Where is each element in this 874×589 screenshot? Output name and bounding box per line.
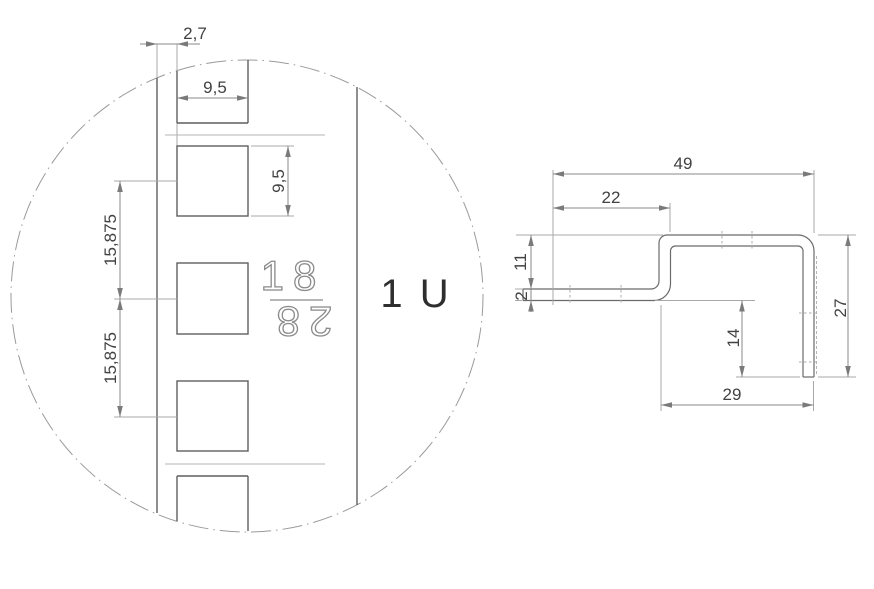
- arrowhead: [285, 146, 291, 157]
- dim-step-height-text: 11: [511, 253, 530, 271]
- rack-rail-detail-view: 2,7 9,5 9,5 15,875: [11, 24, 483, 532]
- bracket-profile-outline: [523, 231, 818, 377]
- arrowhead: [528, 278, 534, 289]
- arrowhead: [661, 402, 672, 408]
- hole-square: [177, 381, 248, 451]
- dimension-lower-width: 29: [661, 305, 814, 411]
- arrowhead: [177, 95, 188, 101]
- hole-square-bottom-partial: [177, 476, 248, 531]
- unit-number-marking: 18 28: [261, 252, 333, 345]
- dimension-overall-width: 49: [553, 154, 814, 305]
- dimension-step-height: 11: [511, 235, 663, 289]
- rail-outline: [157, 44, 357, 513]
- dim-hole-height-text: 9,5: [269, 169, 288, 193]
- bracket-profile-view: 49 22 11 2: [511, 154, 856, 411]
- arrowhead: [528, 235, 534, 246]
- dim-edge-offset-text: 2,7: [183, 24, 207, 43]
- arrowhead: [117, 288, 123, 299]
- marking-bottom-text: 28: [268, 298, 333, 345]
- profile-lower-surface: [523, 246, 803, 377]
- arrowhead: [803, 171, 814, 177]
- dimension-hole-width: 9,5: [177, 78, 248, 101]
- dimension-leg-height: 14: [655, 301, 800, 378]
- arrowhead: [528, 301, 534, 312]
- arrowhead: [237, 95, 248, 101]
- dim-pitch-lower-text: 15,875: [101, 332, 120, 384]
- dimension-upper-flange: 22: [553, 188, 670, 232]
- dim-pitch-upper-text: 15,875: [101, 214, 120, 266]
- marking-top-text: 18: [261, 252, 326, 299]
- arrowhead: [739, 366, 745, 377]
- arrowhead: [117, 406, 123, 417]
- arrowhead: [553, 171, 564, 177]
- arrowhead: [845, 366, 851, 377]
- drawing-svg: 2,7 9,5 9,5 15,875: [0, 0, 874, 584]
- mounting-holes: [177, 60, 248, 531]
- unit-height-label: 1 U: [380, 272, 451, 316]
- arrowhead: [803, 402, 814, 408]
- dim-lower-width-text: 29: [723, 385, 742, 404]
- dim-upper-flange-text: 22: [602, 188, 621, 207]
- dim-overall-width-text: 49: [674, 154, 693, 173]
- dimension-edge-offset: 2,7: [140, 24, 207, 47]
- dim-sheet-thickness-text: 2: [512, 291, 531, 300]
- dim-leg-height-text: 14: [724, 329, 743, 348]
- arrowhead: [659, 205, 670, 211]
- hole-square: [177, 263, 248, 334]
- dim-hole-width-text: 9,5: [203, 78, 227, 97]
- dimension-hole-height: 9,5: [251, 146, 294, 216]
- hole-square: [177, 146, 248, 216]
- profile-upper-surface: [523, 235, 814, 377]
- dim-overall-height-text: 27: [831, 299, 850, 318]
- arrowhead: [285, 205, 291, 216]
- technical-drawing-page: 2,7 9,5 9,5 15,875: [0, 0, 874, 584]
- dimension-hole-pitch: 15,875 15,875: [101, 181, 177, 417]
- dimension-overall-height: 27: [818, 235, 856, 377]
- arrowhead: [146, 41, 157, 47]
- arrowhead: [117, 299, 123, 310]
- arrowhead: [553, 205, 564, 211]
- arrowhead: [117, 181, 123, 192]
- arrowhead: [739, 301, 745, 312]
- dimension-sheet-thickness: 2: [512, 289, 534, 312]
- arrowhead: [845, 235, 851, 246]
